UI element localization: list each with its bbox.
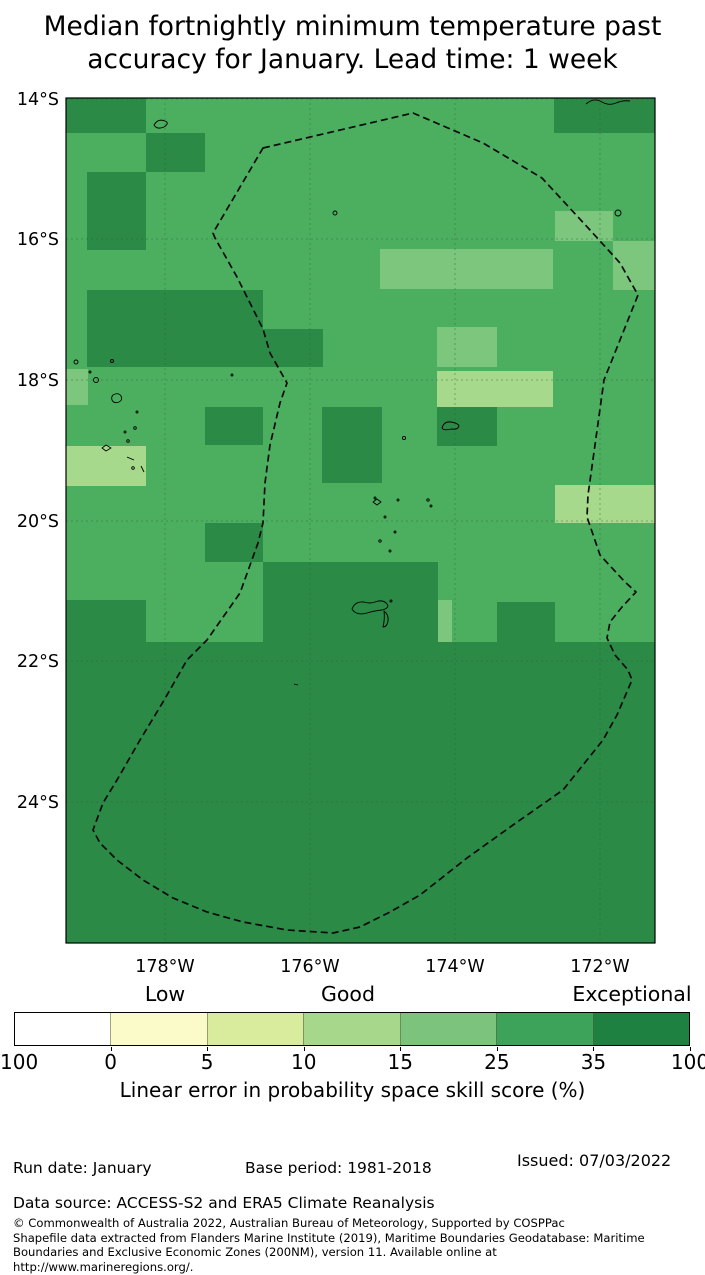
map-cell [555,211,613,241]
data-source-label: Data source: ACCESS-S2 and ERA5 Climate … [13,1194,435,1212]
colorbar-segment [15,1013,110,1045]
map-cell [555,485,655,523]
map-cell [66,369,88,405]
lon-tick-label: 176°W [280,957,339,977]
map-cell [380,249,553,289]
map-canvas: 14°S16°S18°S20°S22°S24°S178°W176°W174°W1… [0,0,705,980]
colorbar-segment [303,1013,399,1045]
fine-print-line: Shapefile data extracted from Flanders M… [13,1231,701,1246]
lat-tick-label: 24°S [17,793,59,813]
map-cell [437,371,553,407]
colorbar-segment [400,1013,496,1045]
colorbar-caption: Linear error in probability space skill … [0,1078,705,1102]
colorbar-segment [207,1013,303,1045]
map-cell [66,446,146,486]
map-cell [263,329,323,367]
colorbar-segment [496,1013,592,1045]
fine-print-line: http://www.marineregions.org/. [13,1260,701,1275]
colorbar-header-good: Good [321,982,375,1006]
colorbar-tick-label: 100 [671,1050,705,1074]
colorbar-tick-label: 5 [201,1050,214,1074]
lat-tick-label: 14°S [17,90,59,110]
map-cell [205,407,263,445]
base-period-label: Base period: 1981-2018 [245,1159,432,1177]
colorbar [14,1012,690,1046]
colorbar-tick-label: 15 [388,1050,413,1074]
map-cell [146,133,205,172]
lon-tick-label: 178°W [135,957,194,977]
colorbar-header-exceptional: Exceptional [572,982,691,1006]
map-cell [438,600,452,642]
figure-page: Median fortnightly minimum temperature p… [0,0,705,1275]
map-cell [87,172,146,250]
map-cell [205,523,263,562]
map-cell [613,241,655,290]
map-cell [66,600,146,642]
colorbar-tick-label: 100 [0,1050,38,1074]
map-cell [437,327,497,367]
fine-print-line: Boundaries and Exclusive Economic Zones … [13,1245,701,1260]
lon-tick-label: 174°W [425,957,484,977]
lat-tick-label: 22°S [17,652,59,672]
colorbar-header-low: Low [145,982,185,1006]
lat-tick-label: 18°S [17,371,59,391]
copyright-fine-print: © Commonwealth of Australia 2022, Austra… [13,1216,701,1274]
map-cell [66,98,146,133]
map-cell [263,562,438,642]
colorbar-tick-label: 25 [484,1050,509,1074]
lat-tick-label: 20°S [17,512,59,532]
issued-date-label: Issued: 07/03/2022 [517,1151,671,1170]
lon-tick-label: 172°W [570,957,629,977]
map-cell [497,602,555,642]
colorbar-tick-label: 0 [104,1050,117,1074]
fine-print-line: © Commonwealth of Australia 2022, Austra… [13,1216,701,1231]
map-cell [87,290,263,367]
run-date-label: Run date: January [13,1159,152,1177]
map-cell [322,407,382,483]
colorbar-segment [110,1013,206,1045]
colorbar-tick-label: 35 [581,1050,606,1074]
colorbar-segment [593,1013,689,1045]
colorbar-tick-label: 10 [291,1050,316,1074]
map-cell [66,642,655,943]
lat-tick-label: 16°S [17,230,59,250]
map-cell [437,407,497,446]
